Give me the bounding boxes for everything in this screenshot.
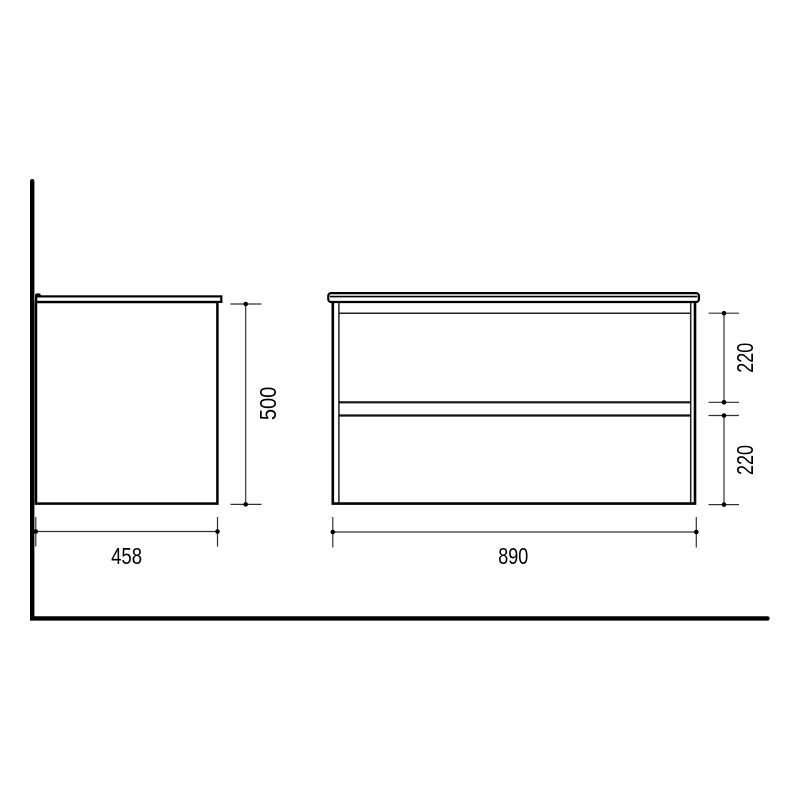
svg-text:458: 458 (111, 543, 142, 569)
svg-text:220: 220 (732, 343, 758, 373)
svg-text:890: 890 (498, 543, 528, 569)
svg-text:500: 500 (255, 387, 281, 421)
svg-text:220: 220 (732, 445, 758, 475)
